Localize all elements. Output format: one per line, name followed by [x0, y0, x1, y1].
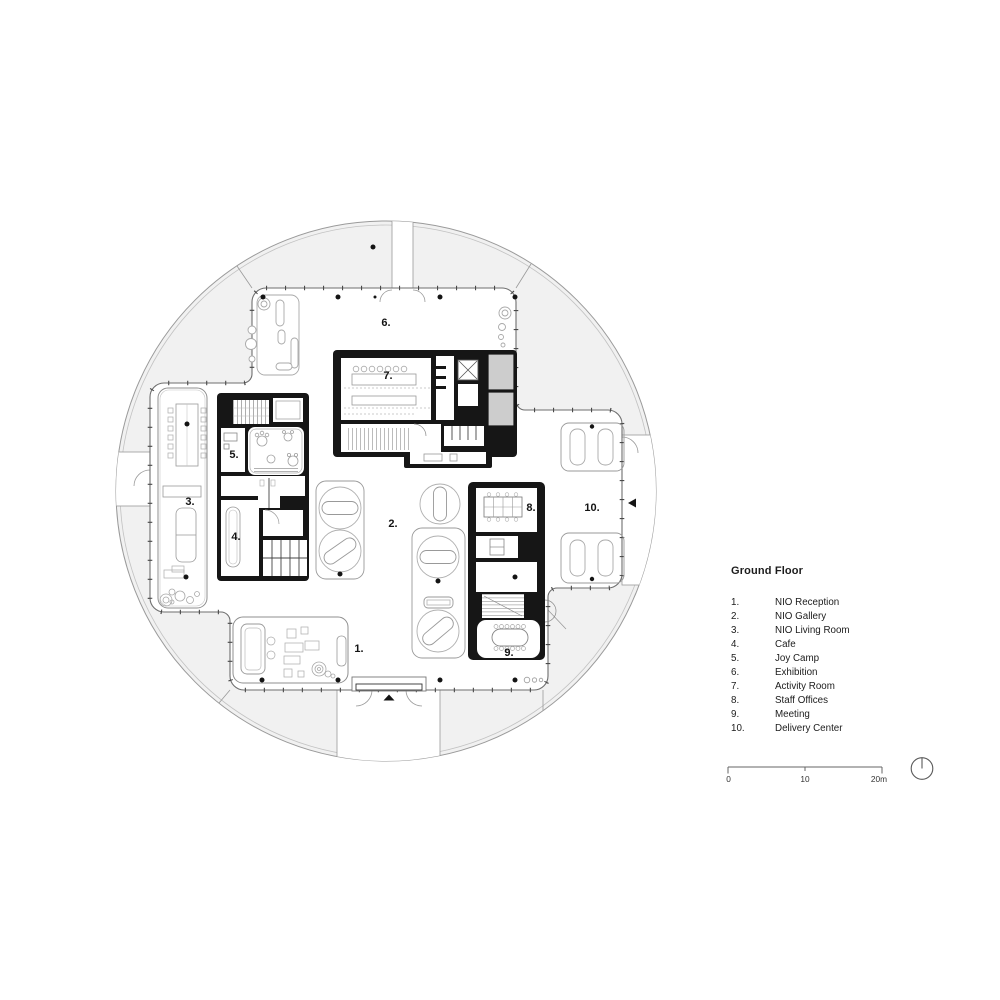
legend-item-name: Meeting: [775, 708, 911, 722]
legend-item-name: Cafe: [775, 638, 911, 652]
legend-item-name: Delivery Center: [775, 722, 911, 736]
room-label-7: 7.: [383, 370, 392, 382]
scale-bar: 0 10 20m: [726, 758, 894, 791]
joycamp-playroom: [248, 427, 304, 475]
legend-item: 10. Delivery Center: [731, 722, 911, 736]
legend-item-name: NIO Reception: [775, 596, 911, 610]
legend-item-name: NIO Gallery: [775, 610, 911, 624]
room-label-4: 4.: [231, 531, 240, 543]
room-label-10: 10.: [584, 502, 599, 514]
legend-item: 5. Joy Camp: [731, 652, 911, 666]
legend-item-num: 5.: [731, 652, 775, 666]
room-label-2: 2.: [388, 518, 397, 530]
scale-label-20m: 20m: [871, 774, 887, 784]
legend-item-num: 10.: [731, 722, 775, 736]
room-label-6: 6.: [381, 317, 390, 329]
legend-item: 7. Activity Room: [731, 680, 911, 694]
legend-item-name: Staff Offices: [775, 694, 911, 708]
legend-item-name: Joy Camp: [775, 652, 911, 666]
living-room: [158, 388, 207, 608]
room-label-5: 5.: [229, 449, 238, 461]
scale-label-0: 0: [726, 774, 731, 784]
floor-plan: 1. 2. 3. 4. 5. 6. 7. 8. 9. 10.: [0, 0, 1000, 1000]
legend-item: 1. NIO Reception: [731, 596, 911, 610]
legend-item: 2. NIO Gallery: [731, 610, 911, 624]
legend-item-num: 3.: [731, 624, 775, 638]
room-label-1: 1.: [354, 643, 363, 655]
legend-title: Ground Floor: [731, 565, 911, 577]
legend-item-num: 8.: [731, 694, 775, 708]
legend-item-num: 4.: [731, 638, 775, 652]
legend-item-name: Exhibition: [775, 666, 911, 680]
joycamp-cafe-walls: [217, 393, 309, 581]
legend-item: 4. Cafe: [731, 638, 911, 652]
legend-item-num: 6.: [731, 666, 775, 680]
north-indicator-icon: [908, 754, 936, 787]
legend-item-num: 2.: [731, 610, 775, 624]
scale-label-10: 10: [800, 774, 810, 784]
activity-room-walls: [333, 350, 517, 468]
legend-item-num: 7.: [731, 680, 775, 694]
staff-offices-walls: [468, 482, 556, 660]
legend-item: 8. Staff Offices: [731, 694, 911, 708]
room-label-8: 8.: [526, 502, 535, 514]
legend-item: 9. Meeting: [731, 708, 911, 722]
room-label-9: 9.: [504, 647, 513, 659]
legend-item-num: 9.: [731, 708, 775, 722]
reception-room: [233, 617, 348, 683]
elevator: [458, 360, 478, 380]
legend: Ground Floor 1. NIO Reception 2. NIO Gal…: [731, 565, 911, 736]
page: 1. 2. 3. 4. 5. 6. 7. 8. 9. 10. Ground Fl…: [0, 0, 1000, 1000]
legend-item-name: Activity Room: [775, 680, 911, 694]
legend-item-name: NIO Living Room: [775, 624, 911, 638]
legend-item: 3. NIO Living Room: [731, 624, 911, 638]
room-label-3: 3.: [185, 496, 194, 508]
legend-item: 6. Exhibition: [731, 666, 911, 680]
legend-item-num: 1.: [731, 596, 775, 610]
